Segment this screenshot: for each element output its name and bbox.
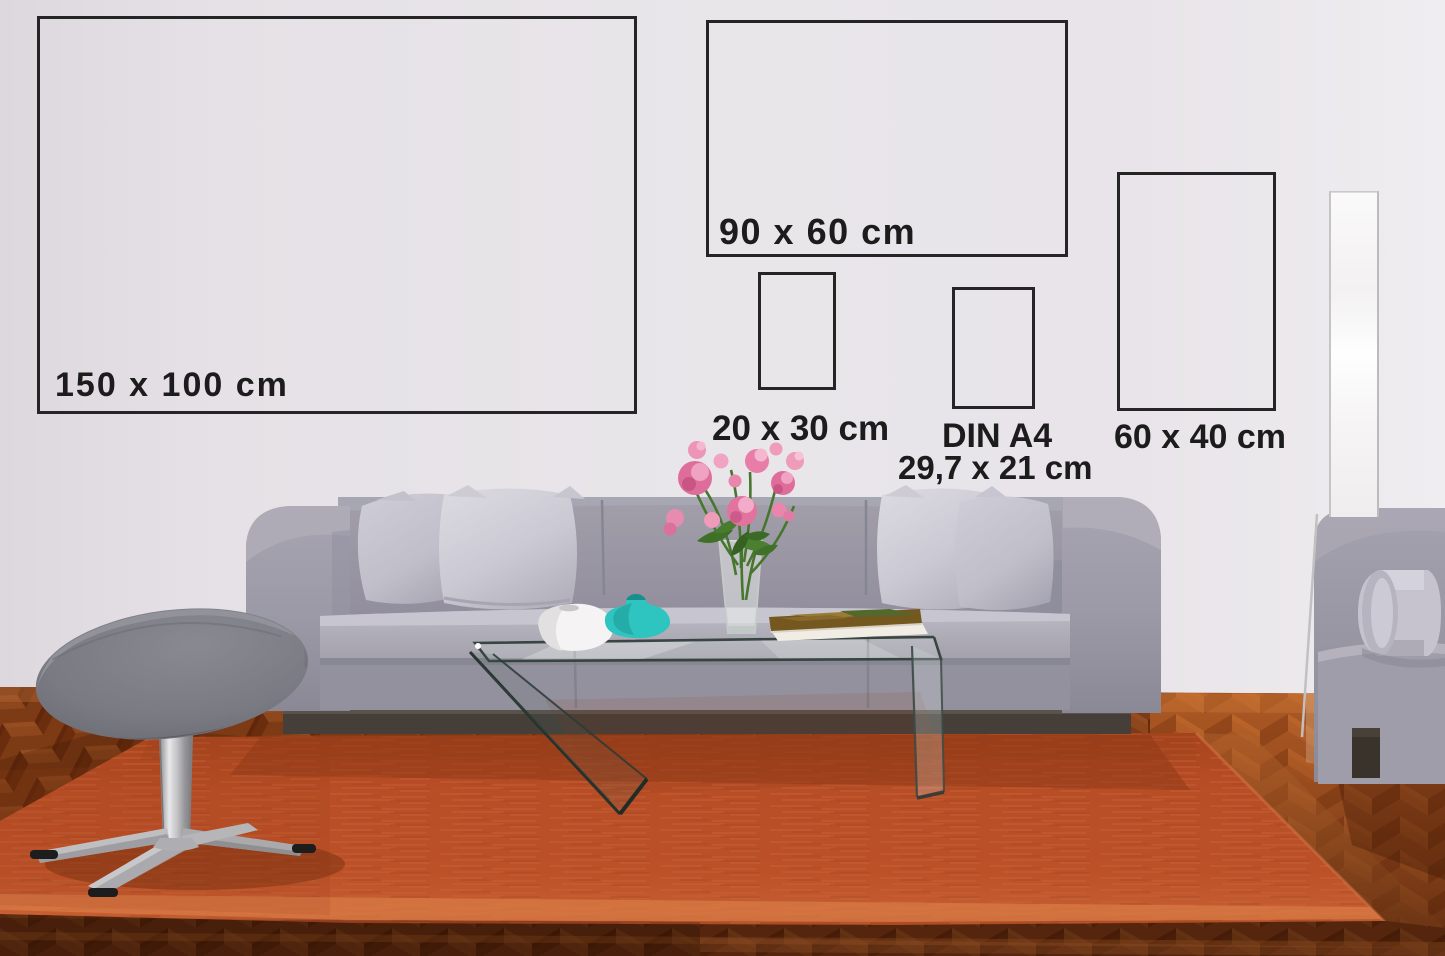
svg-text:150 x 100 cm: 150 x 100 cm: [55, 366, 289, 404]
svg-text:90 x 60 cm: 90 x 60 cm: [719, 211, 916, 252]
svg-text:20 x 30 cm: 20 x 30 cm: [712, 409, 889, 448]
svg-text:29,7 x 21 cm: 29,7 x 21 cm: [898, 449, 1093, 486]
svg-text:60 x 40 cm: 60 x 40 cm: [1114, 418, 1286, 456]
